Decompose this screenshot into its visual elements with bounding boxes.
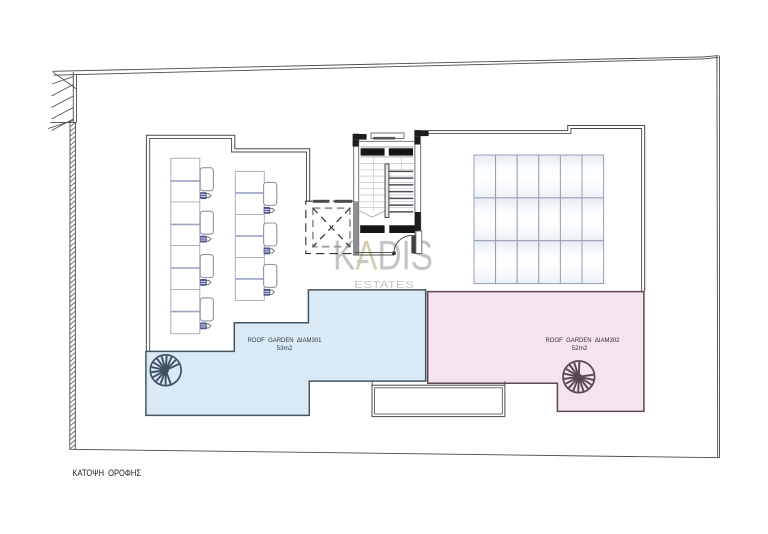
svg-text:ΚΑΤΟΨΗ ΟΡΟΦΗΣ: ΚΑΤΟΨΗ ΟΡΟΦΗΣ [73,468,142,478]
svg-text:ROOF GARDEN ΔIAM302: ROOF GARDEN ΔIAM302 [546,337,620,344]
svg-text:ROOF GARDEN ΔIAM301: ROOF GARDEN ΔIAM301 [248,337,322,344]
svg-text:53m2: 53m2 [277,345,293,352]
svg-text:52m2: 52m2 [572,345,588,352]
